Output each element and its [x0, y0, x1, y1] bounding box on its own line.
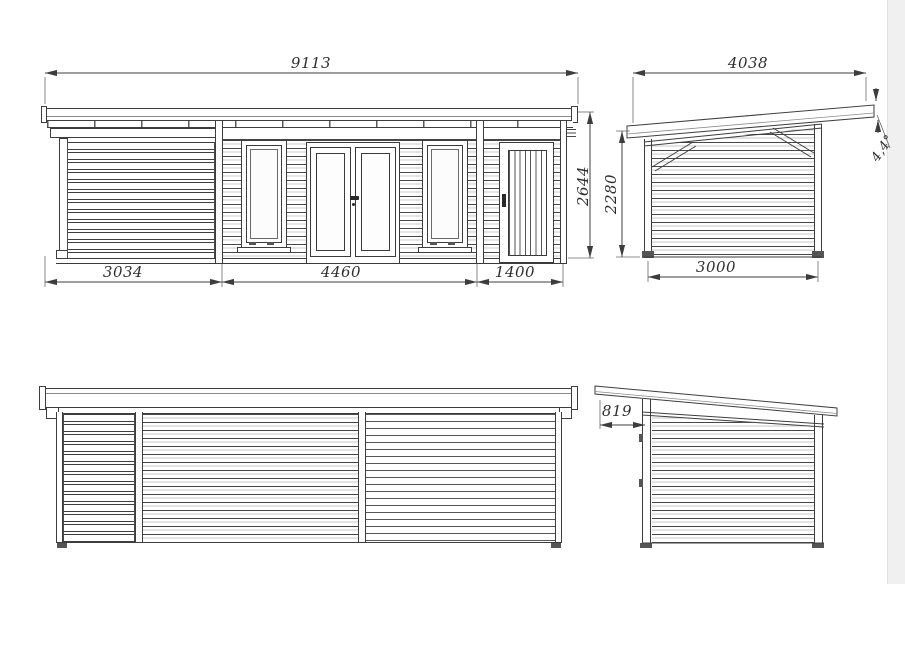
rear-ground-line [56, 542, 562, 544]
window-right-tilt-lock [430, 242, 437, 245]
side-b-post-right [814, 415, 823, 543]
terrace-slat-wall [67, 142, 215, 258]
rear-roof-inner-line [42, 393, 576, 394]
window-left-sash [246, 145, 282, 243]
rear-cabin-siding [143, 414, 358, 543]
side-a-wall [652, 126, 816, 257]
wall-corner-right [560, 121, 567, 263]
double-door-right-glass [361, 153, 390, 251]
side-b-hinge-top [639, 434, 643, 442]
side-b-post-left [642, 399, 651, 543]
window-left-tilt-lock2 [267, 242, 274, 245]
annex-door-handle [502, 194, 506, 207]
double-door-left-glass [316, 153, 345, 251]
front-subfascia [47, 121, 573, 128]
side-b-post-base-right [812, 543, 824, 548]
dim-overall-height: 2644 [574, 146, 592, 226]
front-roof-inner-line [44, 116, 576, 117]
window-left-tilt-lock [249, 242, 256, 245]
window-left [241, 140, 287, 248]
terrace-beam [50, 128, 218, 138]
rear-post-2 [358, 412, 366, 543]
dim-overall-depth: 4038 [708, 54, 788, 72]
side-a-post-right [814, 124, 822, 257]
side-a-roof [627, 105, 874, 138]
window-right-tilt-lock2 [448, 242, 455, 245]
dim-overall-width: 9113 [271, 54, 351, 72]
rear-terrace-wall [366, 414, 555, 543]
dim-cabin-width: 4460 [301, 263, 381, 281]
window-right-glass [431, 149, 459, 239]
wall-post-cabin-annex [476, 121, 484, 263]
side-a-post-base-right [812, 251, 824, 258]
rear-roof-cap-left [39, 386, 46, 410]
side-b-post-base-left [640, 543, 652, 548]
side-b-wall [652, 414, 816, 543]
double-door-handle [350, 196, 359, 200]
dim-wall-height: 2280 [602, 154, 620, 234]
side-panel-strip [887, 0, 905, 584]
rear-corner-left [56, 412, 63, 543]
rear-foot-right [551, 543, 561, 548]
rear-foot-left [57, 543, 67, 548]
dim-wall-depth: 3000 [676, 258, 756, 276]
technical-drawing-page: { "title": "garden-house-technical-drawi… [0, 0, 905, 665]
window-right-sill [418, 247, 472, 253]
rear-roof-fascia [40, 388, 578, 408]
window-right [422, 140, 468, 248]
annex-door-planks [508, 150, 547, 256]
double-door-leaf-left [310, 147, 351, 257]
side-a-post-left [644, 139, 652, 257]
rear-annex-slat-wall [63, 414, 135, 543]
cabin-header-band [222, 128, 567, 140]
double-door-leaf-right [355, 147, 396, 257]
double-door-keyhole [352, 203, 355, 206]
window-right-sash [427, 145, 463, 243]
window-left-sill [237, 247, 291, 253]
dim-terrace-width: 3034 [83, 263, 163, 281]
dim-annex-width: 1400 [475, 263, 555, 281]
dimension-linework [0, 0, 905, 665]
wall-post-terrace-cabin [215, 121, 223, 263]
rear-post-1 [135, 412, 143, 543]
dim-roof-overhang: 819 [587, 402, 647, 420]
side-b-hinge-bottom [639, 479, 643, 487]
rear-roof-cap-right [571, 386, 578, 410]
annex-door [499, 142, 554, 263]
window-left-glass [250, 149, 278, 239]
front-roof-fascia [42, 108, 578, 121]
rear-corner-right [555, 412, 562, 543]
side-a-post-base-left [642, 251, 654, 258]
